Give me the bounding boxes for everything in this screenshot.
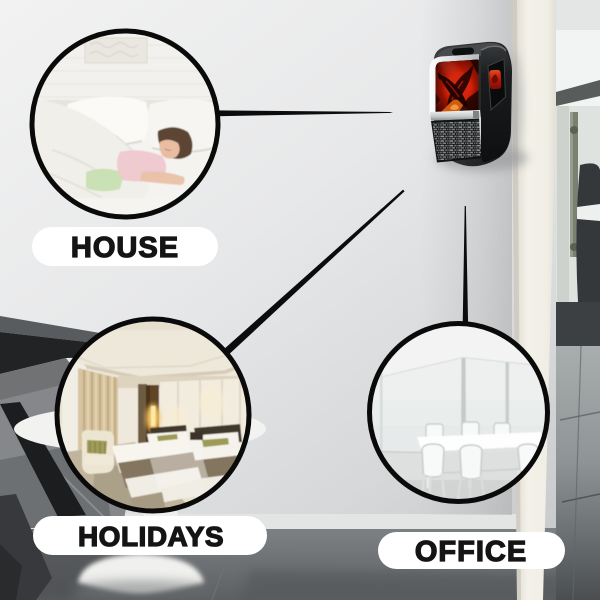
svg-text:HOUSE: HOUSE <box>71 232 179 264</box>
svg-text:OFFICE: OFFICE <box>415 536 527 568</box>
svg-text:HOLIDAYS: HOLIDAYS <box>78 521 224 552</box>
